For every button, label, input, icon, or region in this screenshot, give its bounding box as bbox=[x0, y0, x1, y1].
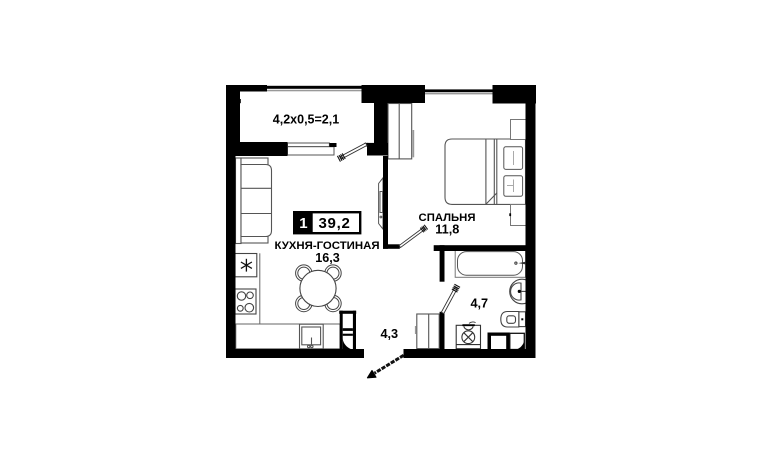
svg-text:4,7: 4,7 bbox=[470, 296, 488, 310]
svg-text:39,2: 39,2 bbox=[319, 215, 351, 232]
svg-text:11,8: 11,8 bbox=[435, 222, 459, 236]
svg-text:16,3: 16,3 bbox=[315, 251, 340, 265]
svg-text:4,3: 4,3 bbox=[380, 327, 398, 341]
svg-text:1: 1 bbox=[299, 215, 307, 232]
svg-text:4,2х0,5=2,1: 4,2х0,5=2,1 bbox=[273, 112, 339, 126]
